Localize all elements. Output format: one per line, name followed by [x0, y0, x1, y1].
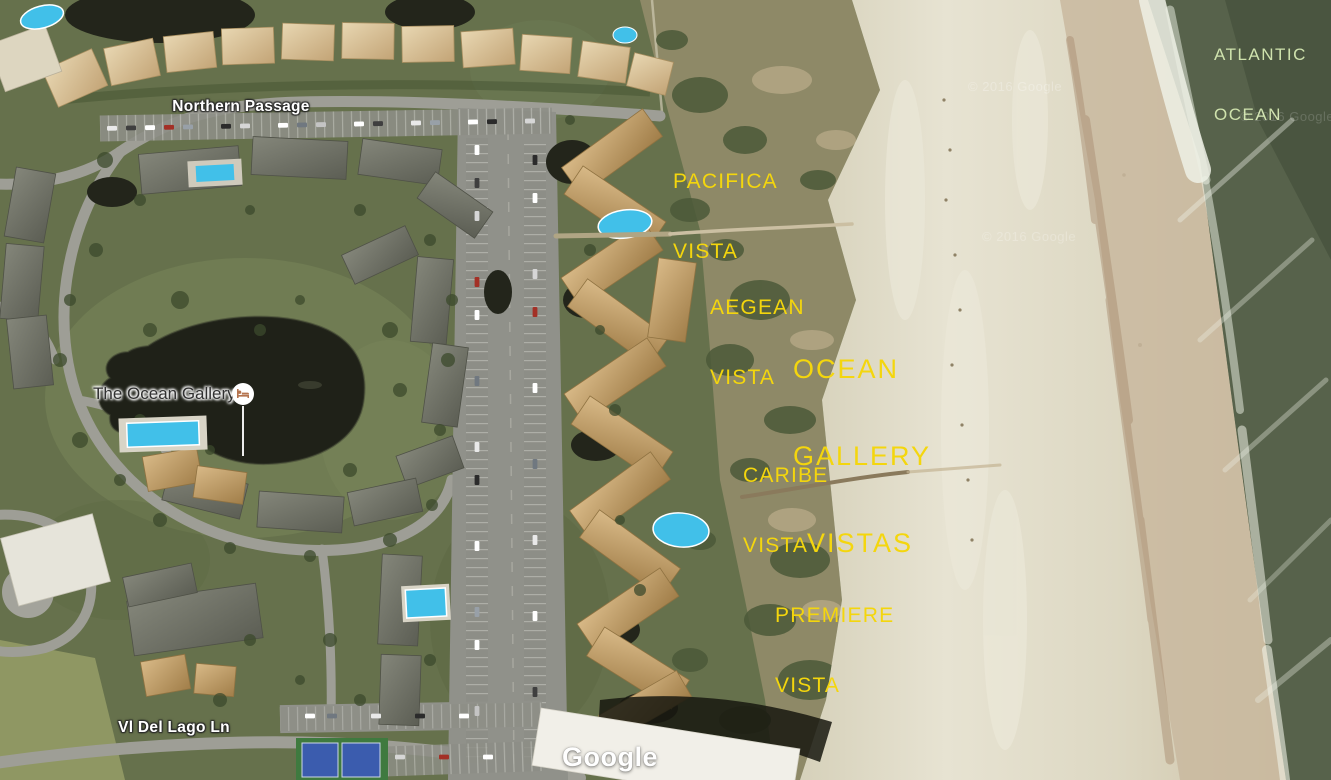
label-line: PACIFICA — [673, 171, 778, 199]
area-label-aegean-vista: AEGEAN VISTA — [710, 255, 805, 416]
area-label-premiere-vista: PREMIERE VISTA — [775, 563, 894, 724]
label-line: OCEAN — [793, 356, 931, 389]
map-viewport[interactable]: PACIFICA VISTA AEGEAN VISTA OCEAN GALLER… — [0, 0, 1331, 780]
road-label-vi-del-lago: Vl Del Lago Ln — [98, 720, 250, 736]
label-line: CARIBE — [743, 465, 828, 493]
poi-label-ocean-gallery[interactable]: The Ocean Gallery — [93, 385, 231, 402]
poi-stem-line — [242, 406, 244, 456]
label-line: VISTA — [710, 367, 805, 395]
area-label-caribe-vista: CARIBE VISTA — [743, 423, 828, 584]
copyright-watermark: © 2016 Google — [968, 80, 1062, 93]
label-line: VISTA — [775, 675, 894, 703]
label-line: PREMIERE — [775, 605, 894, 633]
lodging-poi-icon[interactable] — [231, 382, 255, 406]
copyright-watermark: © 2016 Google — [982, 230, 1076, 243]
ocean-name-label: ATLANTIC OCEAN — [1214, 12, 1307, 149]
copyright-watermark: © 2016 Google — [1240, 110, 1331, 123]
road-label-northern-passage: Northern Passage — [160, 99, 322, 115]
label-line: VISTA — [743, 535, 828, 563]
label-line: AEGEAN — [710, 297, 805, 325]
tennis-courts — [296, 738, 388, 780]
label-line: ATLANTIC — [1214, 46, 1307, 72]
google-logo[interactable]: Google — [562, 744, 658, 771]
